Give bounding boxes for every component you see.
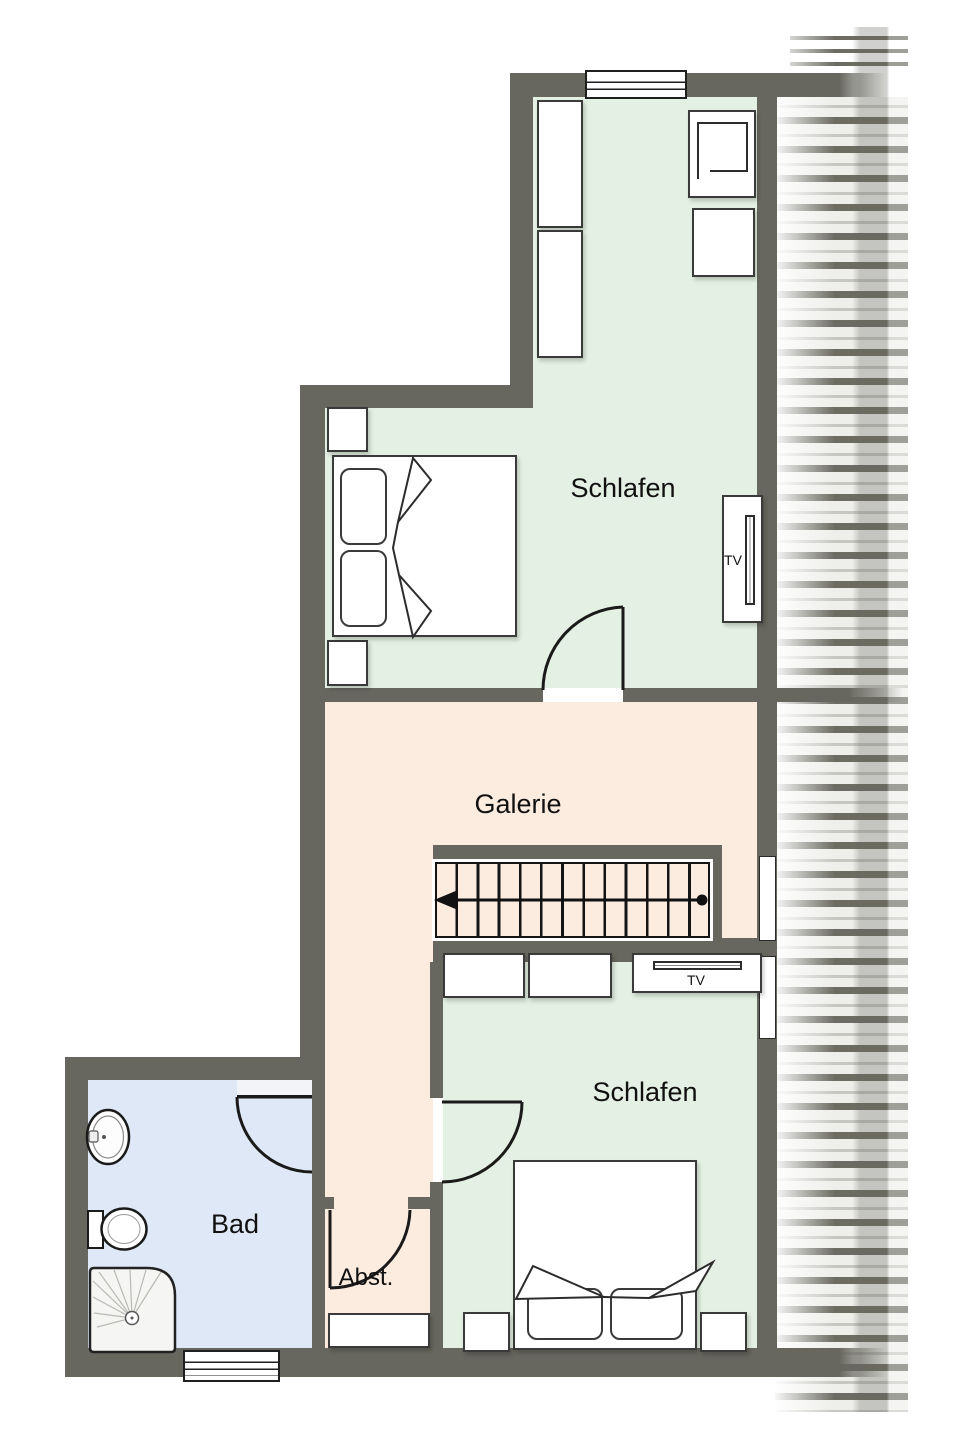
window-top: [585, 70, 687, 99]
wall-top-roof-extension: [777, 73, 890, 97]
floorplan-canvas: Schlafen Galerie Schlafen Bad Abst. TV T…: [0, 0, 960, 1451]
bed-upper: [332, 455, 517, 637]
pillow: [340, 468, 387, 545]
nightstand-lower-left: [463, 1312, 510, 1352]
window-top-glazing: [587, 76, 685, 93]
nightstand-lower-right: [700, 1312, 747, 1352]
staircase: [435, 862, 710, 938]
bed-lower: [513, 1160, 697, 1350]
wall-mid-left: [300, 385, 325, 1080]
nightstand-upper-2: [327, 640, 368, 686]
dresser-1: [443, 953, 525, 998]
label-gallery: Galerie: [418, 789, 618, 820]
side-table: [692, 208, 755, 277]
wall-gallery-north-b: [623, 688, 757, 702]
wall-bath-top: [65, 1057, 312, 1080]
wall-storage-stub-right: [408, 1197, 443, 1209]
wall-right: [757, 73, 777, 1377]
wall-lower-left: [65, 1057, 88, 1377]
tv-screen-lower: [653, 961, 742, 970]
storage-cabinet: [328, 1313, 430, 1348]
wall-corridor-bedroom-upper-part: [430, 962, 443, 1098]
armchair: [688, 110, 756, 198]
wall-upper-left: [510, 73, 533, 408]
label-bedroom-lower: Schlafen: [545, 1077, 745, 1108]
label-tv-lower: TV: [666, 972, 726, 988]
wall-bottom-roof-extension: [777, 1348, 890, 1377]
wall-mid-roof-extension: [777, 688, 908, 702]
window-right-upper: [759, 856, 776, 941]
wardrobe-upper-1: [537, 100, 583, 228]
wall-gallery-north-a: [322, 688, 543, 702]
wall-storage-stub-left: [322, 1197, 334, 1209]
label-bedroom-upper: Schlafen: [523, 473, 723, 504]
roof-shade-overlay: [775, 27, 908, 1412]
wardrobe-upper-2: [537, 230, 583, 358]
label-tv-upper: TV: [720, 552, 746, 568]
pillow: [610, 1288, 683, 1340]
bathroom-door-opening: [237, 1080, 312, 1097]
wall-stair-top: [433, 845, 722, 862]
wall-step: [300, 385, 533, 408]
tv-screen-upper: [745, 515, 755, 605]
window-bottom-glazing: [185, 1356, 278, 1376]
window-bottom: [183, 1350, 280, 1382]
pillow: [527, 1288, 603, 1340]
wall-bottom: [65, 1348, 777, 1377]
dresser-2: [528, 953, 612, 998]
nightstand-upper-1: [327, 407, 368, 452]
pillow: [340, 550, 387, 627]
label-bathroom: Bad: [135, 1209, 335, 1240]
label-storage: Abst.: [306, 1264, 426, 1292]
